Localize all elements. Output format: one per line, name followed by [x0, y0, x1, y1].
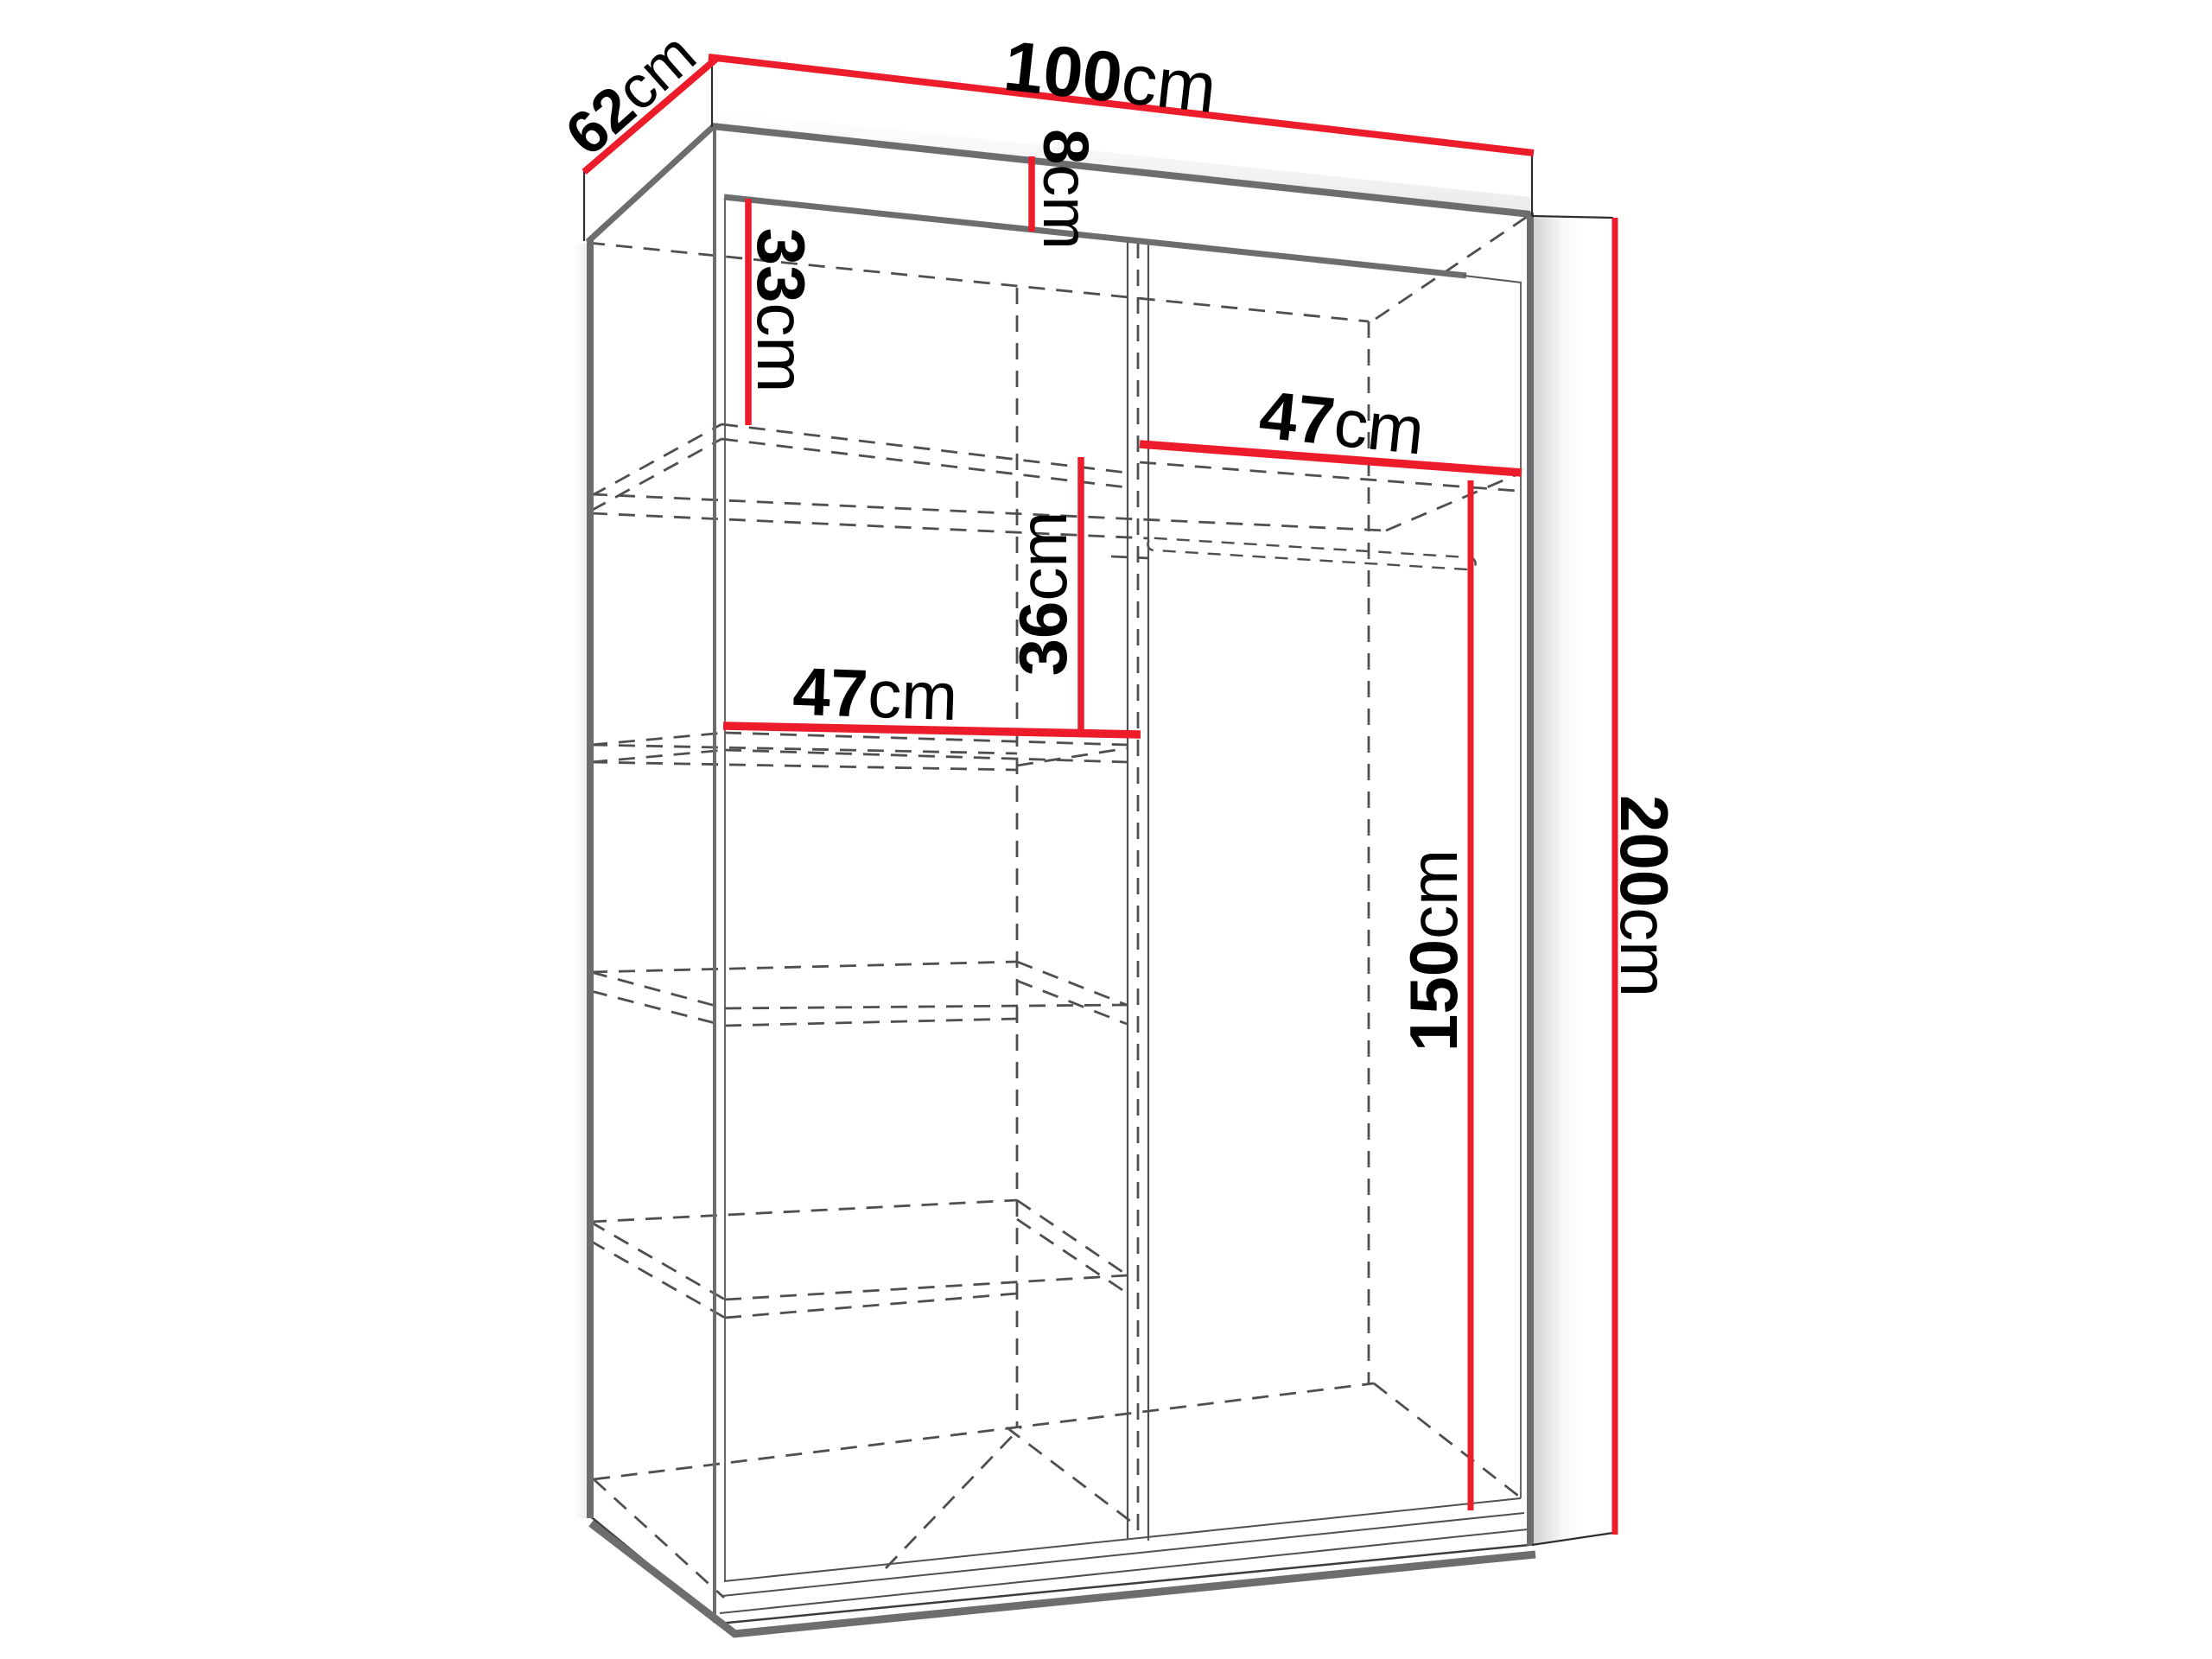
svg-text:200cm: 200cm	[1606, 795, 1682, 997]
svg-text:47cm: 47cm	[791, 653, 959, 735]
svg-text:36cm: 36cm	[1005, 512, 1081, 677]
svg-text:8cm: 8cm	[1030, 129, 1102, 250]
svg-text:33cm: 33cm	[743, 228, 819, 393]
svg-text:150cm: 150cm	[1395, 849, 1471, 1052]
